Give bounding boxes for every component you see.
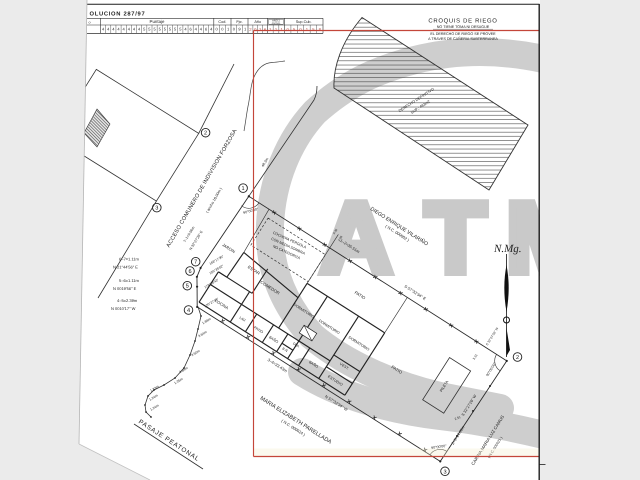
svg-text:6–7=1.11m: 6–7=1.11m	[119, 257, 139, 262]
svg-text:EL DERECHO DE RIEGO SE PROVEE: EL DERECHO DE RIEGO SE PROVEE	[430, 32, 496, 36]
svg-text:N.Mg.: N.Mg.	[493, 243, 522, 255]
svg-text:4: 4	[187, 308, 190, 314]
svg-text:CROQUIS DE RIEGO: CROQUIS DE RIEGO	[428, 17, 497, 24]
svg-text:N 0010'17" W: N 0010'17" W	[111, 306, 136, 311]
svg-text:T: T	[425, 182, 486, 294]
svg-text:A: A	[320, 182, 392, 294]
svg-text:6: 6	[188, 269, 191, 275]
svg-text:o: o	[89, 21, 91, 25]
svg-text:7: 7	[194, 260, 197, 266]
svg-text:N 21°44'56" E: N 21°44'56" E	[113, 265, 138, 270]
svg-text:N 0019'56" E: N 0019'56" E	[113, 286, 137, 291]
svg-text:2: 2	[204, 131, 207, 137]
svg-text:Año: Año	[254, 20, 261, 24]
svg-text:Puntaje: Puntaje	[150, 19, 165, 24]
svg-text:Fje.: Fje.	[236, 20, 242, 24]
svg-text:4–5=2.39m: 4–5=2.39m	[117, 298, 138, 303]
svg-text:NO TIENE TOMA NI DESAGUE: NO TIENE TOMA NI DESAGUE	[437, 25, 490, 29]
svg-text:Cod.: Cod.	[218, 20, 226, 24]
svg-text:3: 3	[155, 206, 158, 212]
svg-text:(INCND): (INCND)	[272, 22, 281, 25]
svg-text:AÑO 2: AÑO 2	[272, 18, 280, 22]
svg-text:2: 2	[516, 355, 519, 361]
svg-text:3: 3	[443, 469, 446, 475]
svg-text:1: 1	[242, 186, 245, 192]
svg-text:5: 5	[186, 284, 189, 290]
svg-text:Sup.Cub.: Sup.Cub.	[296, 20, 312, 24]
svg-text:OLUCION 287/97: OLUCION 287/97	[90, 11, 146, 18]
svg-text:5–6=1.11m: 5–6=1.11m	[119, 278, 139, 283]
svg-text:A TRAVES DE CAÑERIA SUBTERRANE: A TRAVES DE CAÑERIA SUBTERRANEA	[428, 36, 498, 41]
